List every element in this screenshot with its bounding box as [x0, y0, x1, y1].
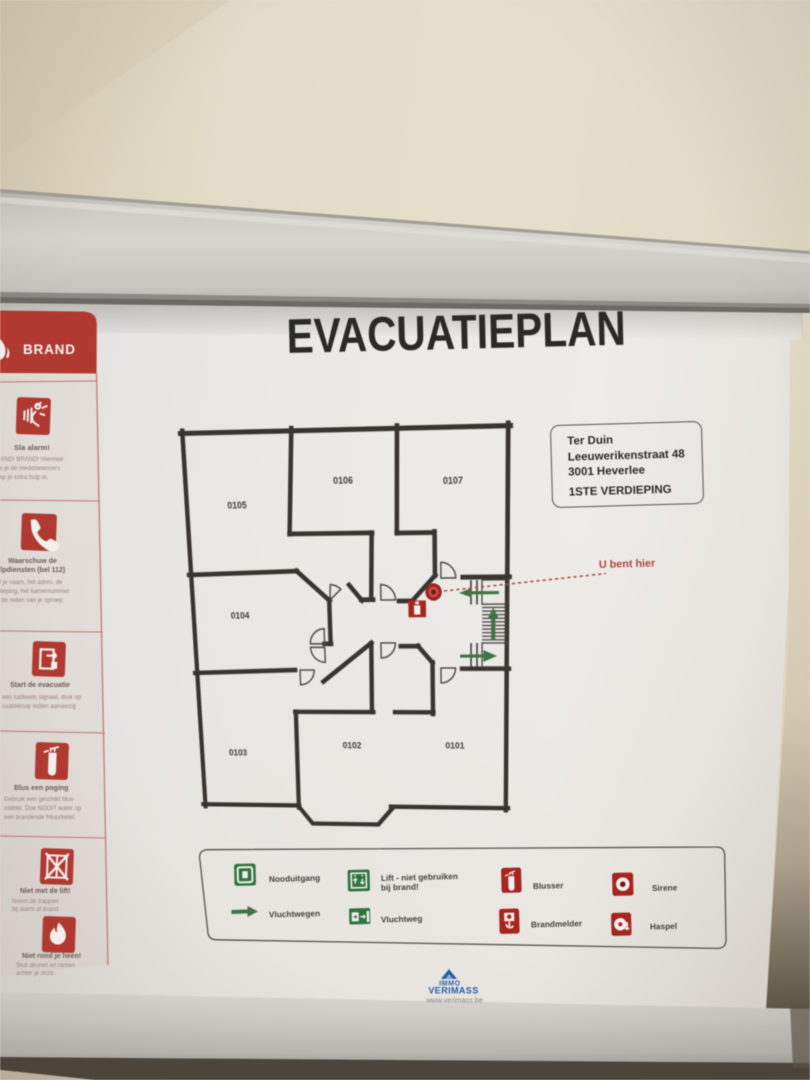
svg-text:bij brand!: bij brand! — [381, 882, 419, 893]
svg-text:Haspel: Haspel — [650, 921, 677, 932]
svg-text:www.verimass.be: www.verimass.be — [425, 996, 483, 1005]
svg-text:VERIMASS: VERIMASS — [428, 986, 478, 996]
svg-text:Sirene: Sirene — [652, 882, 678, 893]
svg-text:Vluchtweg: Vluchtweg — [381, 913, 423, 924]
svg-text:Lift - niet gebruiken: Lift - niet gebruiken — [381, 871, 458, 883]
svg-text:Blusser: Blusser — [533, 880, 564, 891]
svg-text:Vluchtwegen: Vluchtwegen — [269, 908, 320, 919]
svg-text:Nooduitgang: Nooduitgang — [269, 873, 320, 884]
svg-text:Brandmelder: Brandmelder — [531, 918, 583, 929]
